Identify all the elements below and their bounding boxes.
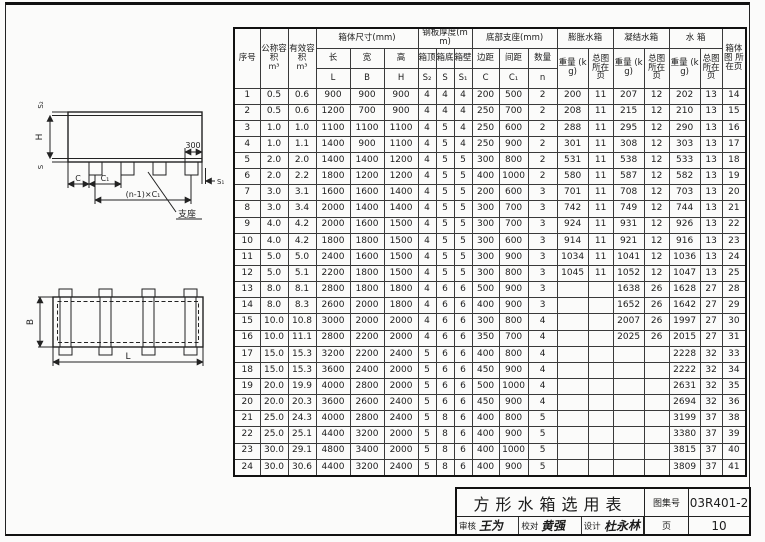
cell: 1.1 <box>288 136 316 152</box>
cell: 23 <box>722 233 746 249</box>
cell: 1100 <box>350 120 384 136</box>
cell: 13 <box>700 233 722 249</box>
cell: 200 <box>557 88 588 104</box>
cell: 1800 <box>316 233 350 249</box>
cell: 202 <box>669 88 700 104</box>
cell: 538 <box>613 153 644 169</box>
cell: 4 <box>418 282 436 298</box>
cell: 6 <box>436 298 454 314</box>
label-span: (n-1)×C₁ <box>126 190 161 199</box>
cell <box>588 282 613 298</box>
cell: 4 <box>418 136 436 152</box>
cell: 600 <box>499 120 528 136</box>
cell: 6 <box>454 411 472 427</box>
cell: 5 <box>528 411 557 427</box>
cell: 5 <box>418 346 436 362</box>
cell: 1800 <box>384 298 418 314</box>
atlas-number-label: 图集号 <box>645 489 689 517</box>
cell: 6 <box>454 330 472 346</box>
cell: 30 <box>722 314 746 330</box>
cell: 1034 <box>557 249 588 265</box>
table-row: 41.01.1140090011004542509002301113081230… <box>234 136 746 152</box>
cell: 12 <box>644 169 669 185</box>
cell: 12 <box>644 104 669 120</box>
cell: 6 <box>436 395 454 411</box>
cell: 700 <box>350 104 384 120</box>
cell: 21 <box>234 411 260 427</box>
cell: 924 <box>557 217 588 233</box>
cell: 2600 <box>316 298 350 314</box>
cell: 12 <box>234 266 260 282</box>
cell: 8 <box>436 443 454 459</box>
cell: 4 <box>418 217 436 233</box>
cell: 8 <box>436 427 454 443</box>
cell: 2.0 <box>260 153 288 169</box>
cell: 34 <box>722 362 746 378</box>
cell: 4 <box>418 330 436 346</box>
cell: 1500 <box>384 233 418 249</box>
cell: 1047 <box>669 266 700 282</box>
cell: 12 <box>644 120 669 136</box>
cell: 1045 <box>557 266 588 282</box>
cell: 36 <box>722 395 746 411</box>
cell: 1100 <box>316 120 350 136</box>
cell: 800 <box>499 153 528 169</box>
cell: 10 <box>234 233 260 249</box>
cell: 10.0 <box>260 314 288 330</box>
cell: 300 <box>472 153 499 169</box>
cell: 1200 <box>316 104 350 120</box>
cell: 5 <box>436 120 454 136</box>
cell: 40 <box>722 443 746 459</box>
cell: 32 <box>700 362 722 378</box>
cell: 6 <box>454 427 472 443</box>
cell: 22 <box>722 217 746 233</box>
cell: 2 <box>528 120 557 136</box>
cell: 5 <box>418 443 436 459</box>
cell: 35 <box>722 379 746 395</box>
cell: 16 <box>234 330 260 346</box>
cell: 26 <box>644 298 669 314</box>
cell: 300 <box>472 266 499 282</box>
reviewer-label: 审核 <box>459 520 476 532</box>
col-water-weight: 重量 (kg) <box>669 48 700 88</box>
cell: 1400 <box>350 201 384 217</box>
effective-volume-unit: m³ <box>289 63 316 71</box>
designer-group: 设计 杜永林 <box>582 517 644 534</box>
title-block: 方形水箱选用表 图集号 03R401-2 审核 王为 校对 黄强 设计 杜永林 … <box>455 487 751 536</box>
cell: 3199 <box>669 411 700 427</box>
cell: 2694 <box>669 395 700 411</box>
cell <box>613 443 644 459</box>
cell: 37 <box>700 427 722 443</box>
cell: 15 <box>234 314 260 330</box>
cell: 22 <box>234 427 260 443</box>
cell: 5 <box>436 185 454 201</box>
cell: 12 <box>644 249 669 265</box>
col-top-plate-cn: 箱顶 <box>418 48 436 68</box>
cell: 900 <box>350 136 384 152</box>
cell: 250 <box>472 120 499 136</box>
cell: 14 <box>722 88 746 104</box>
cell <box>588 298 613 314</box>
cell <box>557 379 588 395</box>
cell: 1638 <box>613 282 644 298</box>
cell: 6 <box>436 379 454 395</box>
table-header: 序号 公称容积 m³ 有效容积 m³ 箱体尺寸(mm) 钢板厚度(mm) 底部支… <box>234 28 746 88</box>
cell: 1.0 <box>288 120 316 136</box>
cell: 250 <box>472 104 499 120</box>
cell: 5 <box>454 233 472 249</box>
label-support: 支座 <box>178 208 196 220</box>
cell: 1036 <box>669 249 700 265</box>
cell: 6 <box>454 459 472 476</box>
cell: 25.0 <box>260 427 288 443</box>
cell: 30.0 <box>260 459 288 476</box>
cell: 1200 <box>350 169 384 185</box>
cell: 301 <box>557 136 588 152</box>
cell: 5 <box>454 153 472 169</box>
col-spacing-cn: 间距 <box>499 48 528 68</box>
cell: 2000 <box>384 443 418 459</box>
cell: 24.3 <box>288 411 316 427</box>
cell: 2025 <box>613 330 644 346</box>
cell <box>644 459 669 476</box>
table-row: 104.04.218001800150045530060039141192112… <box>234 233 746 249</box>
cell: 39 <box>722 427 746 443</box>
cell: 3600 <box>316 362 350 378</box>
cell: 21 <box>722 201 746 217</box>
cell <box>557 282 588 298</box>
cell: 4 <box>436 104 454 120</box>
cell: 3200 <box>350 459 384 476</box>
cell: 25.0 <box>260 411 288 427</box>
cell: 20 <box>234 395 260 411</box>
cell: 5 <box>436 201 454 217</box>
cell: 3 <box>528 201 557 217</box>
cell: 2 <box>528 136 557 152</box>
cell: 13 <box>700 249 722 265</box>
label-b: B <box>26 319 36 325</box>
cell: 400 <box>472 346 499 362</box>
cell: 11 <box>588 249 613 265</box>
cell: 2000 <box>316 201 350 217</box>
cell: 2.0 <box>288 153 316 169</box>
col-height-sym: H <box>384 68 418 88</box>
cell: 300 <box>472 217 499 233</box>
cell: 0.6 <box>288 88 316 104</box>
cell: 1600 <box>316 185 350 201</box>
group-condensate-tank: 凝结水箱 <box>613 28 669 48</box>
cell: 12 <box>644 201 669 217</box>
cell <box>613 346 644 362</box>
cell: 11 <box>588 153 613 169</box>
cell: 900 <box>316 88 350 104</box>
table-row: 1715.015.3320022002400566400800422283233 <box>234 346 746 362</box>
cell: 400 <box>472 459 499 476</box>
cell: 290 <box>669 120 700 136</box>
cell: 2200 <box>316 266 350 282</box>
cell: 450 <box>472 362 499 378</box>
table-row: 52.02.0140014001200455300800253111538125… <box>234 153 746 169</box>
cell: 700 <box>499 217 528 233</box>
page-number: 10 <box>689 517 749 534</box>
cell: 3.0 <box>260 201 288 217</box>
table-row: 2020.020.3360026002400566450900426943236 <box>234 395 746 411</box>
cell: 37 <box>700 411 722 427</box>
cell: 5 <box>418 395 436 411</box>
table-row: 10.50.6900900900444200500220011207122021… <box>234 88 746 104</box>
cell: 23 <box>234 443 260 459</box>
cell: 5 <box>418 411 436 427</box>
cell: 4.0 <box>260 217 288 233</box>
cell: 4 <box>418 266 436 282</box>
cell: 288 <box>557 120 588 136</box>
col-condensate-weight: 重量 (kg) <box>613 48 644 88</box>
cell: 4 <box>528 362 557 378</box>
cell: 12 <box>644 136 669 152</box>
cell: 1997 <box>669 314 700 330</box>
cell: 29.1 <box>288 443 316 459</box>
table-row: 2430.030.6440032002400586400900538093741 <box>234 459 746 476</box>
label-l: L <box>125 352 130 362</box>
cell: 5 <box>436 266 454 282</box>
cell: 12 <box>644 185 669 201</box>
group-water-tank: 水 箱 <box>669 28 722 48</box>
cell: 15.0 <box>260 362 288 378</box>
cell: 19.9 <box>288 379 316 395</box>
cell: 2.2 <box>288 169 316 185</box>
cell: 4 <box>528 395 557 411</box>
cell: 7 <box>234 185 260 201</box>
cell: 4 <box>454 120 472 136</box>
cell: 2 <box>528 169 557 185</box>
cell: 1642 <box>669 298 700 314</box>
cell: 11 <box>588 201 613 217</box>
cell: 5 <box>528 427 557 443</box>
cell: 5 <box>234 153 260 169</box>
col-nominal-volume: 公称容积 m³ <box>260 28 288 88</box>
cell: 11 <box>588 233 613 249</box>
cell <box>588 330 613 346</box>
cell: 3200 <box>316 346 350 362</box>
cell: 200 <box>472 185 499 201</box>
cell: 4 <box>418 249 436 265</box>
cell: 8.3 <box>288 298 316 314</box>
cell: 13 <box>700 136 722 152</box>
cell: 3.0 <box>260 185 288 201</box>
cell <box>557 346 588 362</box>
cell: 1800 <box>316 169 350 185</box>
cell: 1800 <box>350 282 384 298</box>
cell: 3815 <box>669 443 700 459</box>
col-quantity-sym: n <box>528 68 557 88</box>
cell <box>557 362 588 378</box>
cell <box>613 411 644 427</box>
cell: 14 <box>234 298 260 314</box>
cell <box>588 314 613 330</box>
cell: 5 <box>454 169 472 185</box>
cell: 1800 <box>384 282 418 298</box>
cell: 26 <box>644 282 669 298</box>
cell: 207 <box>613 88 644 104</box>
cell: 3400 <box>350 443 384 459</box>
cell: 6 <box>454 346 472 362</box>
cell: 3 <box>528 298 557 314</box>
col-top-plate-sym: S₂ <box>418 68 436 88</box>
cell: 2400 <box>384 395 418 411</box>
cell: 3 <box>528 217 557 233</box>
table-row: 20.50.6120070090044425070022081121512210… <box>234 104 746 120</box>
cell <box>613 459 644 476</box>
cell: 4 <box>528 379 557 395</box>
group-steel-thickness: 钢板厚度(mm) <box>418 28 472 48</box>
cell: 13 <box>234 282 260 298</box>
label-c1: C₁ <box>101 174 110 183</box>
plan-diagram: B L <box>26 289 203 366</box>
cell: 5 <box>418 379 436 395</box>
col-seq: 序号 <box>234 28 260 88</box>
cell: 18 <box>234 362 260 378</box>
table-row: 115.05.024001600150045530090031034111041… <box>234 249 746 265</box>
table-row: 83.03.4200014001400455300700374211749127… <box>234 201 746 217</box>
cell: 450 <box>472 395 499 411</box>
page-label: 页 <box>645 517 689 534</box>
col-wall-plate-sym: S₁ <box>454 68 472 88</box>
cell: 3.1 <box>288 185 316 201</box>
cell: 41 <box>722 459 746 476</box>
table-row: 2225.025.1440032002000586400900533803739 <box>234 427 746 443</box>
group-expansion-tank: 膨胀水箱 <box>557 28 613 48</box>
cell: 900 <box>499 249 528 265</box>
cell: 5 <box>454 249 472 265</box>
cell: 1600 <box>350 249 384 265</box>
cell: 15.0 <box>260 346 288 362</box>
cell: 744 <box>669 201 700 217</box>
cell <box>613 395 644 411</box>
cell: 250 <box>472 136 499 152</box>
cell: 200 <box>472 88 499 104</box>
cell: 8 <box>436 411 454 427</box>
cell: 700 <box>499 330 528 346</box>
cell: 2000 <box>384 427 418 443</box>
cell <box>557 427 588 443</box>
cell: 400 <box>472 169 499 185</box>
cell: 914 <box>557 233 588 249</box>
cell: 2 <box>528 88 557 104</box>
cell: 4 <box>418 169 436 185</box>
label-s2: S₂ <box>37 101 45 108</box>
cell: 13 <box>700 201 722 217</box>
cell: 303 <box>669 136 700 152</box>
cell: 3 <box>528 266 557 282</box>
cell: 0.6 <box>288 104 316 120</box>
cell: 4 <box>436 88 454 104</box>
cell: 8 <box>234 201 260 217</box>
cell: 6 <box>454 395 472 411</box>
label-s1: S₁ <box>217 178 224 186</box>
cell: 400 <box>472 411 499 427</box>
cell: 29 <box>722 298 746 314</box>
reviewer-signature: 王为 <box>479 517 504 535</box>
cell <box>644 395 669 411</box>
cell: 1 <box>234 88 260 104</box>
cell: 2 <box>234 104 260 120</box>
cell: 2400 <box>384 459 418 476</box>
cell: 2015 <box>669 330 700 346</box>
cell: 8.1 <box>288 282 316 298</box>
cell: 2800 <box>316 282 350 298</box>
cell: 1.0 <box>260 120 288 136</box>
cell: 1400 <box>350 153 384 169</box>
cell: 1600 <box>350 217 384 233</box>
cell: 921 <box>613 233 644 249</box>
cell: 6 <box>436 314 454 330</box>
cell: 210 <box>669 104 700 120</box>
signature-row: 审核 王为 校对 黄强 设计 杜永林 <box>457 517 645 534</box>
cell: 13 <box>700 266 722 282</box>
cell: 25 <box>722 266 746 282</box>
cell: 4 <box>418 185 436 201</box>
col-condensate-page: 总图 所在页 <box>644 48 669 88</box>
cell: 2631 <box>669 379 700 395</box>
cell: 2007 <box>613 314 644 330</box>
table-row: 94.04.2200016001500455300700392411931129… <box>234 217 746 233</box>
cell: 1200 <box>384 169 418 185</box>
cell: 3 <box>528 282 557 298</box>
group-box-dimensions: 箱体尺寸(mm) <box>316 28 418 48</box>
cell: 1800 <box>350 233 384 249</box>
cell: 400 <box>472 443 499 459</box>
cell: 20.3 <box>288 395 316 411</box>
cell <box>557 330 588 346</box>
cell: 5.0 <box>260 266 288 282</box>
cell <box>557 314 588 330</box>
cell: 3600 <box>316 395 350 411</box>
cell: 24 <box>234 459 260 476</box>
cell: 1600 <box>350 185 384 201</box>
col-length-sym: L <box>316 68 350 88</box>
cell <box>644 362 669 378</box>
cell: 10.0 <box>260 330 288 346</box>
cell <box>557 443 588 459</box>
col-body-drawing-page: 箱体图 所在页 <box>722 28 746 88</box>
cell: 5 <box>436 169 454 185</box>
cell: 2000 <box>384 362 418 378</box>
cell: 2600 <box>350 395 384 411</box>
cell: 5 <box>418 459 436 476</box>
cell: 4 <box>454 136 472 152</box>
cell: 800 <box>499 266 528 282</box>
cell: 800 <box>499 411 528 427</box>
cell: 3380 <box>669 427 700 443</box>
cell <box>613 362 644 378</box>
cell: 16 <box>722 120 746 136</box>
cell: 2400 <box>384 411 418 427</box>
table-row: 125.05.122001800150045530080031045111052… <box>234 266 746 282</box>
table-row: 138.08.128001800180046650090031638261628… <box>234 282 746 298</box>
cell: 4 <box>234 136 260 152</box>
cell: 17 <box>234 346 260 362</box>
cell: 2000 <box>384 314 418 330</box>
cell: 701 <box>557 185 588 201</box>
col-spacing-sym: C₁ <box>499 68 528 88</box>
cell: 20.0 <box>260 379 288 395</box>
group-bottom-support: 底部支座(mm) <box>472 28 557 48</box>
cell: 500 <box>499 88 528 104</box>
cell: 5 <box>418 427 436 443</box>
cell: 11 <box>588 88 613 104</box>
